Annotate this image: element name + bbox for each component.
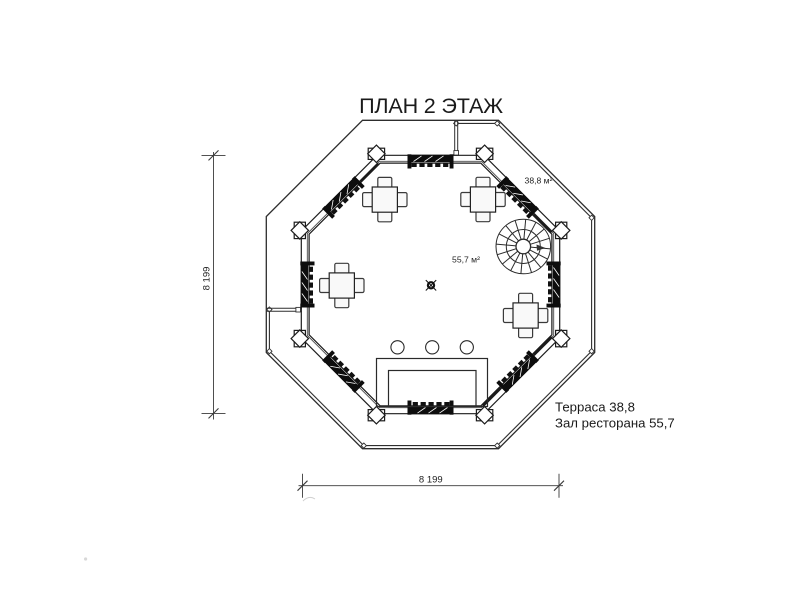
svg-text:Терраса 38,8: Терраса 38,8 — [555, 400, 635, 415]
svg-text:ПЛАН 2 ЭТАЖ: ПЛАН 2 ЭТАЖ — [359, 93, 503, 118]
svg-text:8 199: 8 199 — [419, 475, 443, 486]
svg-text:55,7 м²: 55,7 м² — [452, 255, 480, 265]
svg-text:8 199: 8 199 — [202, 267, 213, 291]
svg-text:Зал ресторана 55,7: Зал ресторана 55,7 — [555, 416, 675, 431]
svg-text:38,8 м²: 38,8 м² — [525, 175, 553, 185]
